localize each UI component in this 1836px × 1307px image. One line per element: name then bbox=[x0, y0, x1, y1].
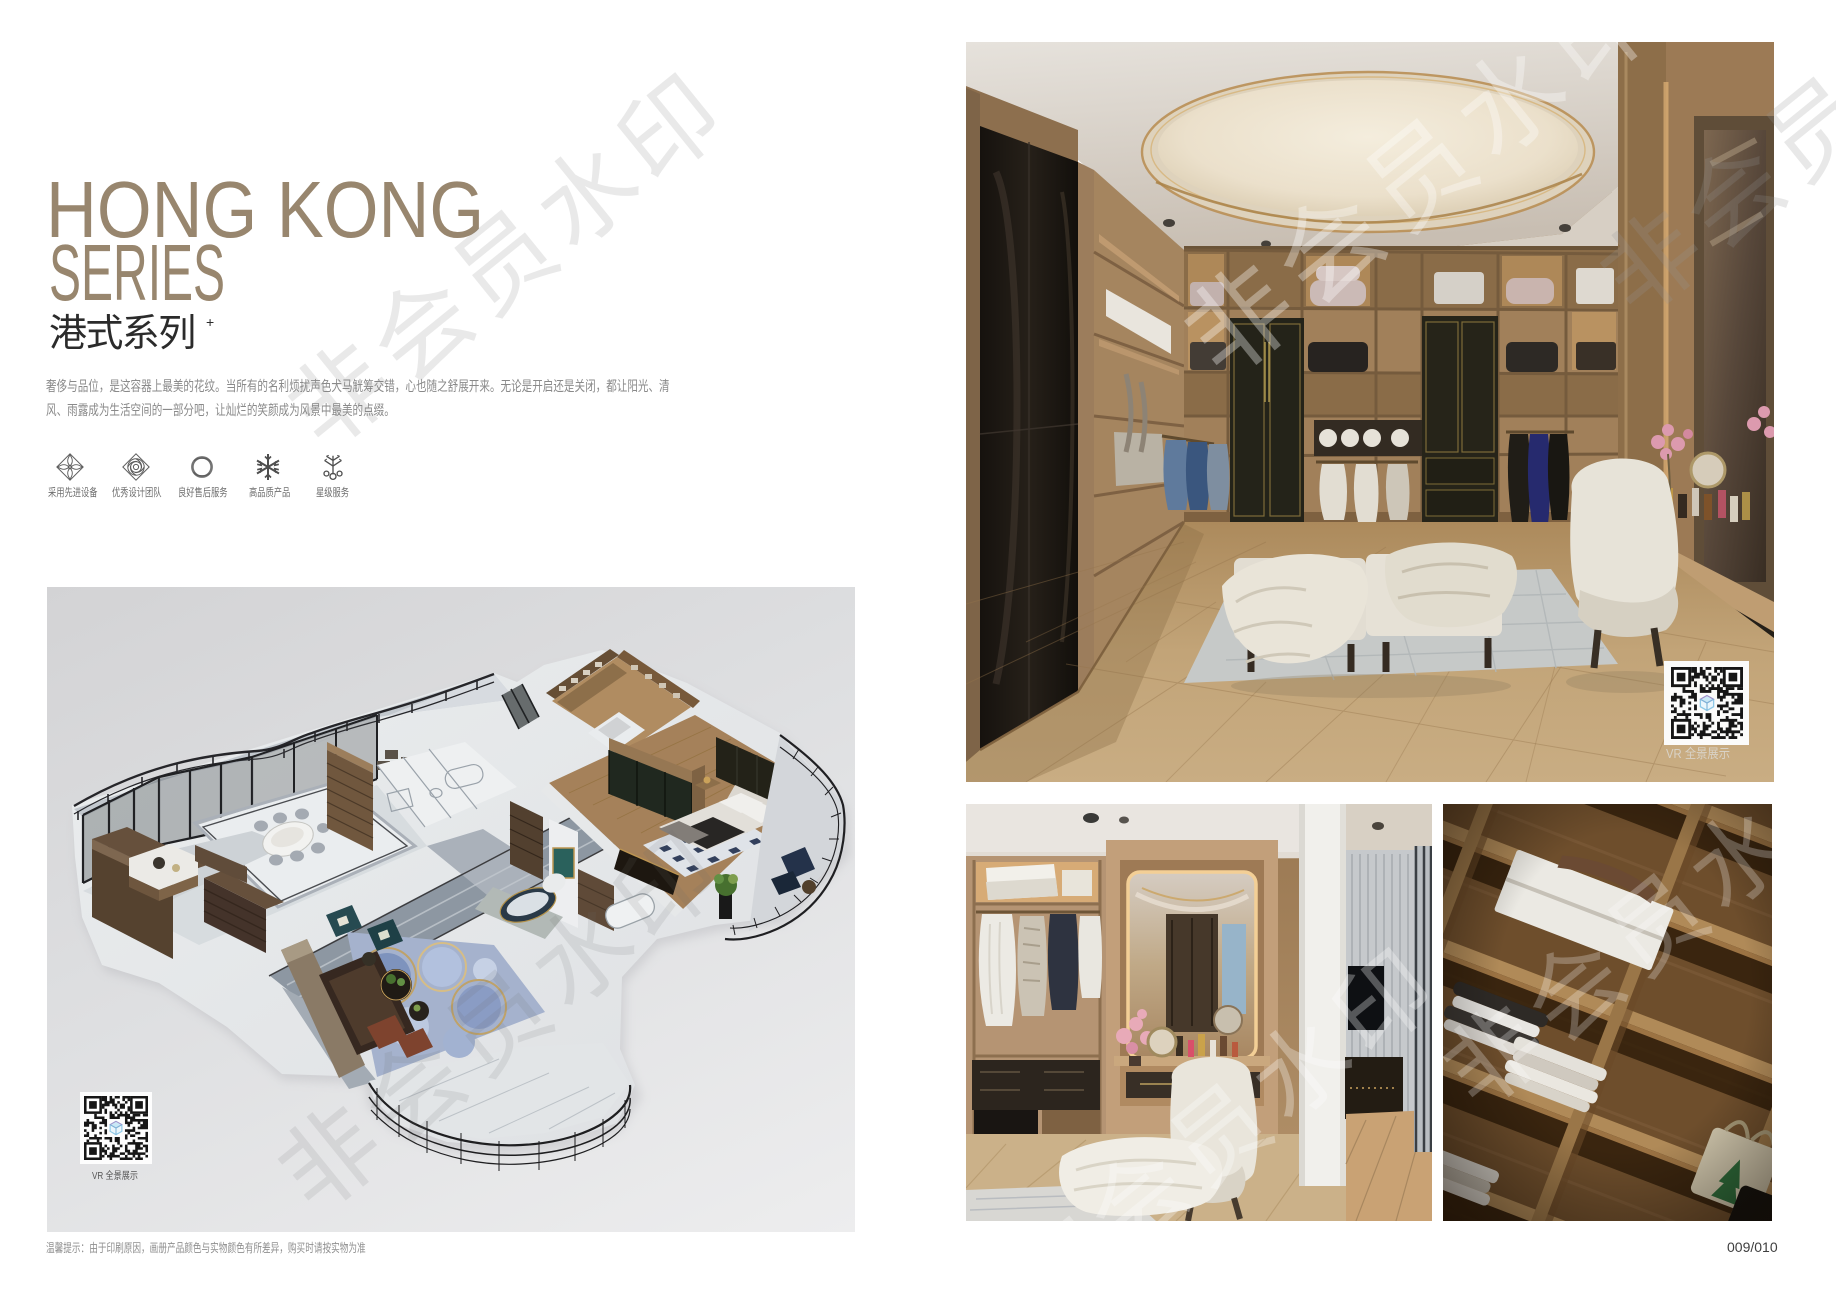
svg-text:VR 全景展示: VR 全景展示 bbox=[1666, 746, 1730, 761]
svg-text:VR 全景展示: VR 全景展示 bbox=[92, 1169, 138, 1182]
